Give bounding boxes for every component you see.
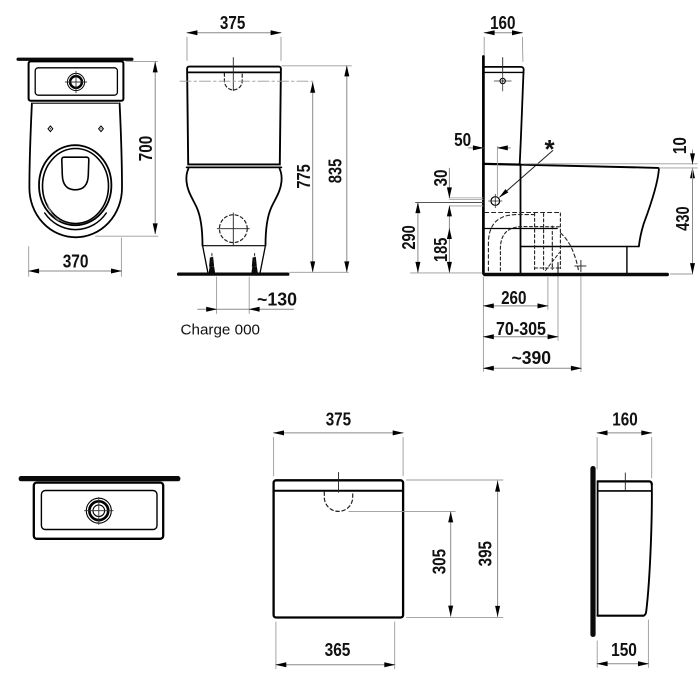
svg-text:375: 375 xyxy=(326,409,351,429)
svg-text:50: 50 xyxy=(454,130,471,150)
svg-text:305: 305 xyxy=(430,549,450,574)
svg-text:700: 700 xyxy=(136,136,156,161)
svg-text:375: 375 xyxy=(220,13,245,33)
svg-text:290: 290 xyxy=(399,225,419,250)
svg-text:260: 260 xyxy=(501,288,526,308)
svg-text:395: 395 xyxy=(475,541,495,566)
svg-text:70-305: 70-305 xyxy=(496,319,546,339)
svg-text:835: 835 xyxy=(326,159,346,184)
svg-text:160: 160 xyxy=(612,409,637,429)
svg-text:430: 430 xyxy=(673,206,693,231)
svg-text:~130: ~130 xyxy=(257,290,297,310)
svg-text:365: 365 xyxy=(325,640,351,660)
svg-text:10: 10 xyxy=(670,137,690,154)
svg-text:370: 370 xyxy=(63,251,89,271)
svg-text:150: 150 xyxy=(611,640,637,660)
svg-text:30: 30 xyxy=(431,170,451,187)
svg-text:*: * xyxy=(544,134,555,164)
svg-text:775: 775 xyxy=(294,164,314,189)
svg-text:~390: ~390 xyxy=(512,348,552,368)
svg-text:Charge 000: Charge 000 xyxy=(181,322,261,338)
svg-text:185: 185 xyxy=(431,238,451,262)
svg-text:160: 160 xyxy=(490,13,515,33)
